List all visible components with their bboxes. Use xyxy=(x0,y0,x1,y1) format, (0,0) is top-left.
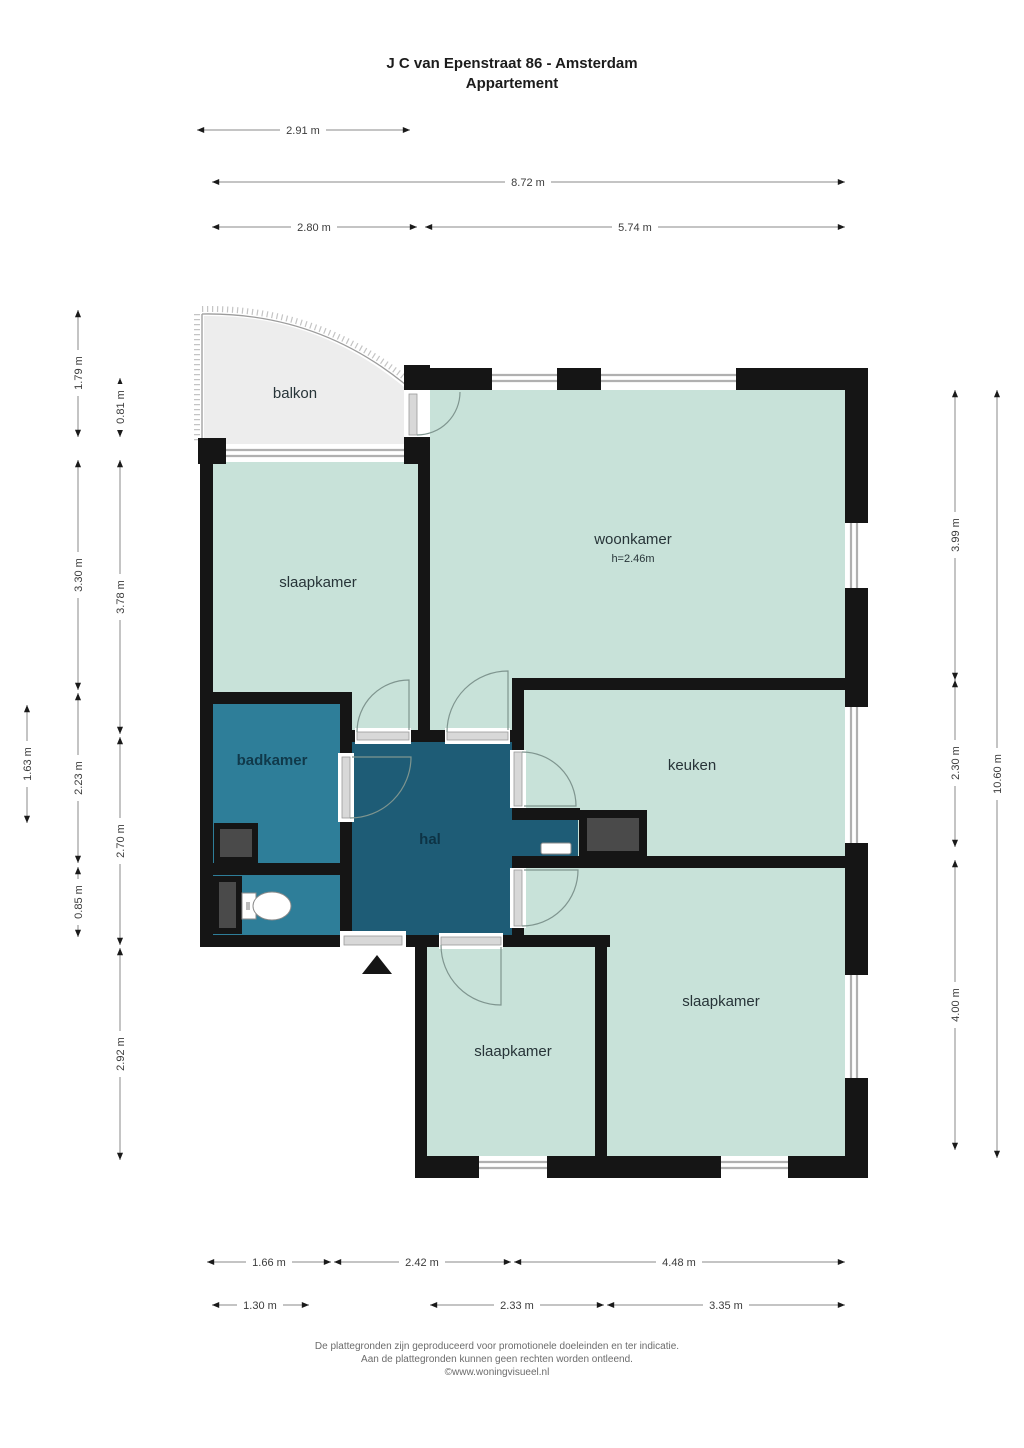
toilet-flush xyxy=(246,902,250,910)
wall-toilet-bottom xyxy=(200,935,340,947)
page-subtitle: Appartement xyxy=(466,75,559,92)
page-title: J C van Epenstraat 86 - Amsterdam xyxy=(386,55,637,72)
floorplan-page: J C van Epenstraat 86 - Amsterdam Appart… xyxy=(0,0,1024,1448)
footer-copyright: ©www.woningvisueel.nl xyxy=(445,1367,550,1378)
label-balkon: balkon xyxy=(273,385,317,402)
wall-tl-wk-divider xyxy=(418,392,430,742)
label-keuken: keuken xyxy=(668,757,716,774)
wall-badkamer-toilet-divider xyxy=(200,863,352,875)
label-woonkamer-height: h=2.46m xyxy=(611,553,654,565)
dimensions-left: 1.63 m 1.79 m 3.30 m 2.23 m 0.85 m 0.81 … xyxy=(20,310,127,1160)
wall-frontdoor-right xyxy=(406,935,415,947)
dimensions-top: 2.91 m 8.72 m 2.80 m 5.74 m xyxy=(197,123,845,234)
wall-top-a xyxy=(426,368,492,390)
wall-keuken-left xyxy=(512,678,524,750)
door-strip-keuken xyxy=(514,752,522,806)
dim-label: 2.42 m xyxy=(405,1257,439,1269)
wall-right-1 xyxy=(845,368,868,523)
label-slaapkamer-bl: slaapkamer xyxy=(474,1043,552,1060)
shaft-keuken xyxy=(583,814,643,855)
footer-disclaimer: De plattegronden zijn geproduceerd voor … xyxy=(315,1341,679,1378)
wall-hal-top-a xyxy=(340,730,355,742)
dim-label: 3.35 m xyxy=(709,1300,743,1312)
wall-badkamer-top xyxy=(200,692,352,704)
door-strip-slaapkamer-tl xyxy=(357,732,409,740)
wall-bottom-right-corner xyxy=(788,1156,868,1178)
label-slaapkamer-tl: slaapkamer xyxy=(279,574,357,591)
label-woonkamer: woonkamer xyxy=(593,531,672,548)
dim-label: 2.70 m xyxy=(115,824,127,858)
shaft-toilet xyxy=(216,879,239,931)
window-bg xyxy=(226,444,404,462)
wall-bottom-mid xyxy=(547,1156,721,1178)
dim-label: 1.30 m xyxy=(243,1300,277,1312)
dim-label: 4.48 m xyxy=(662,1257,696,1269)
door-strip-slaapkamer-bl xyxy=(441,937,501,945)
entrance-arrow-icon xyxy=(362,955,392,974)
dim-label: 4.00 m xyxy=(950,988,962,1022)
room-fills xyxy=(204,316,845,1156)
dim-label: 2.23 m xyxy=(73,761,85,795)
door-strip-frontdoor xyxy=(344,936,402,945)
dim-label: 3.99 m xyxy=(950,518,962,552)
dim-label: 0.81 m xyxy=(115,390,127,424)
dim-label: 1.63 m xyxy=(22,747,34,781)
wall-balcony-block-left xyxy=(198,438,226,464)
toilet-bowl xyxy=(253,892,291,920)
wall-badkamer-right-bottom xyxy=(340,822,352,947)
window-bg xyxy=(601,368,736,390)
wall-badkamer-right-top xyxy=(340,692,352,753)
dim-label: 8.72 m xyxy=(511,177,545,189)
shaft-badkamer xyxy=(217,826,255,860)
label-hal: hal xyxy=(419,831,441,848)
wall-alcove-top xyxy=(512,808,580,820)
label-slaapkamer-br: slaapkamer xyxy=(682,993,760,1010)
dim-label: 1.66 m xyxy=(252,1257,286,1269)
room-balkon-fill xyxy=(204,316,404,446)
dim-label: 2.91 m xyxy=(286,125,320,137)
wall-top-b xyxy=(557,368,601,390)
hal-sink xyxy=(541,843,571,854)
dimensions-right: 3.99 m 2.30 m 4.00 m 10.60 m xyxy=(948,390,1004,1158)
room-slaapkamer-tl-fill xyxy=(213,462,418,730)
dim-label: 10.60 m xyxy=(992,754,1004,794)
footer-line-1: De plattegronden zijn geproduceerd voor … xyxy=(315,1341,679,1352)
dim-label: 1.79 m xyxy=(73,356,85,390)
dim-label: 3.30 m xyxy=(73,558,85,592)
dim-label: 5.74 m xyxy=(618,222,652,234)
wall-bl-top-b xyxy=(503,935,610,947)
door-strip-woonkamer xyxy=(447,732,508,740)
dimensions-bottom: 1.66 m 2.42 m 4.48 m 1.30 m 2.33 m 3.35 … xyxy=(207,1255,845,1312)
dim-label: 2.92 m xyxy=(115,1037,127,1071)
wall-keuken-bottom xyxy=(512,856,868,868)
dim-label: 2.30 m xyxy=(950,746,962,780)
dim-label: 3.78 m xyxy=(115,580,127,614)
window-bg xyxy=(492,368,557,390)
dim-label: 2.80 m xyxy=(297,222,331,234)
door-strip-badkamer xyxy=(342,757,350,818)
dim-label: 2.33 m xyxy=(500,1300,534,1312)
wall-bl-br-divider xyxy=(595,935,607,1156)
wall-bl-left xyxy=(415,935,427,1178)
footer-line-2: Aan de plattegronden kunnen geen rechten… xyxy=(361,1354,633,1365)
wall-bl-top-a xyxy=(427,935,439,947)
wall-keuken-top xyxy=(512,678,868,690)
dim-label: 0.85 m xyxy=(73,885,85,919)
door-strip-balkon xyxy=(409,394,417,435)
label-badkamer: badkamer xyxy=(237,752,308,769)
floorplan-canvas: J C van Epenstraat 86 - Amsterdam Appart… xyxy=(0,0,1024,1448)
wall-hal-top-pier xyxy=(411,730,445,742)
door-strip-slaapkamer-br xyxy=(514,870,522,926)
